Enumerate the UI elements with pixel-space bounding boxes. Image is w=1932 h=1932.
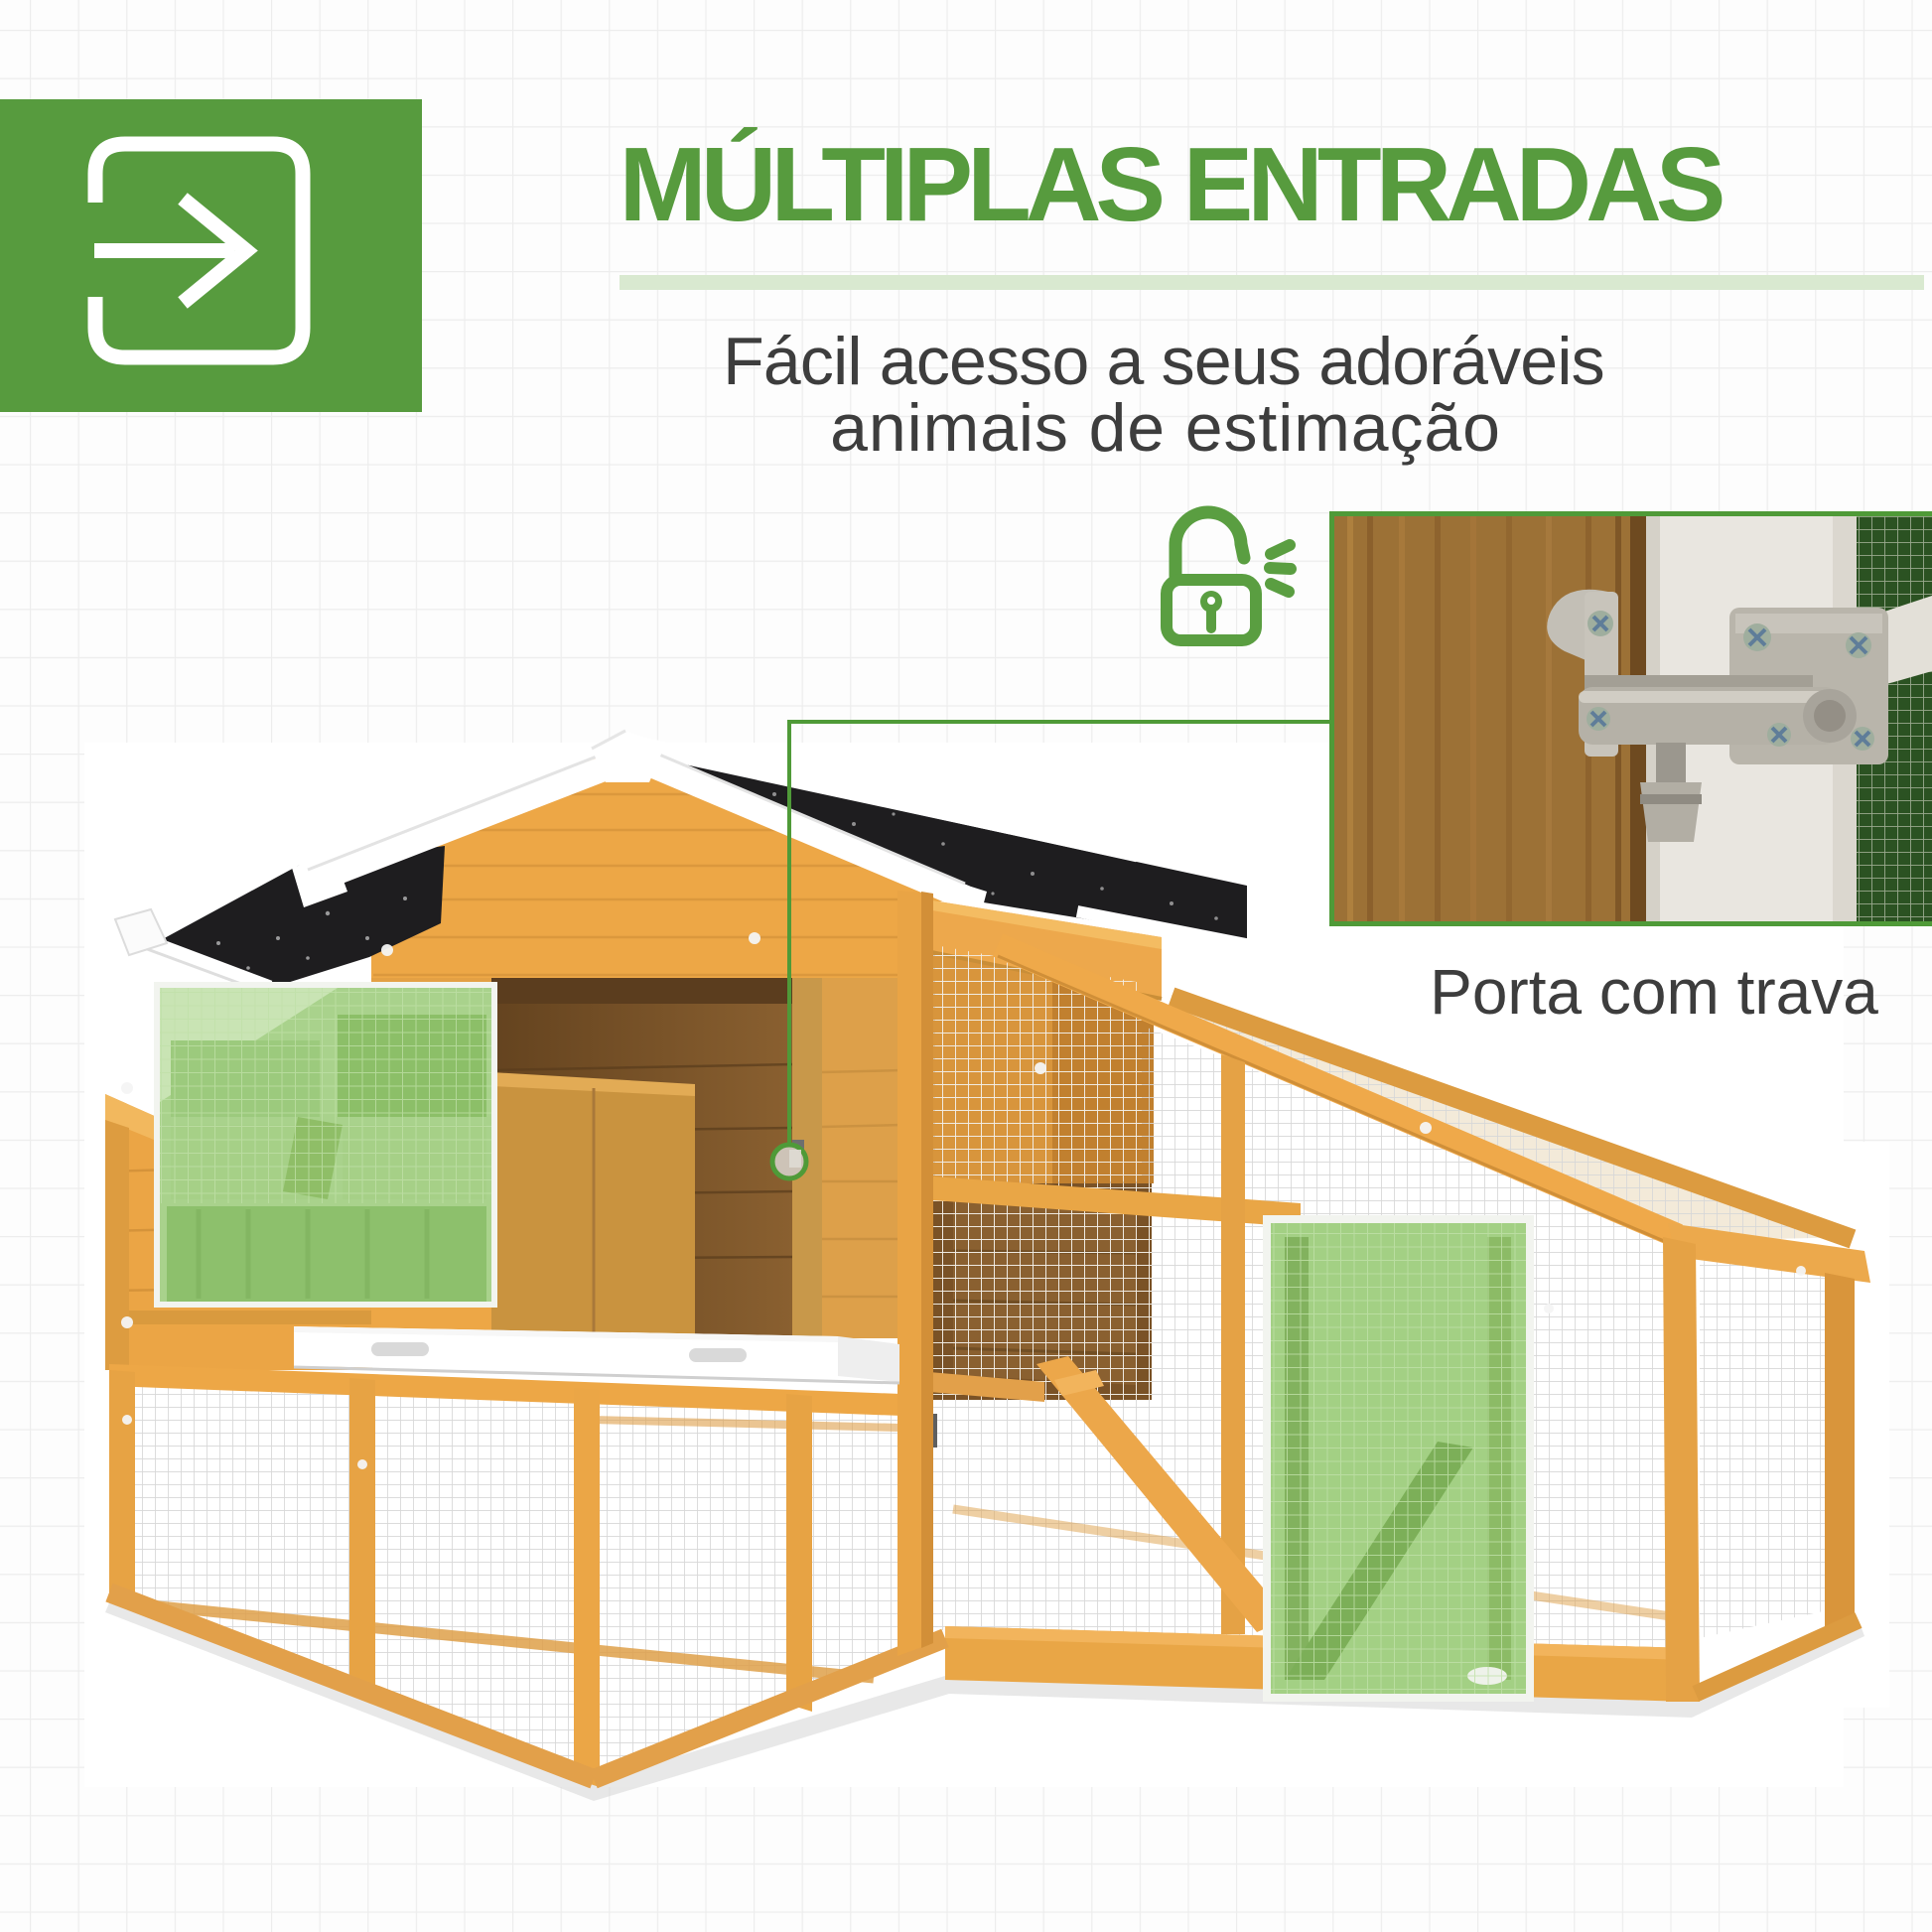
svg-text:animais de estimação: animais de estimação	[830, 390, 1501, 466]
svg-text:Fácil acesso a seus adoráveis: Fácil acesso a seus adoráveis	[723, 324, 1604, 399]
svg-text:Porta com trava: Porta com trava	[1430, 956, 1878, 1028]
svg-text:MÚLTIPLAS ENTRADAS: MÚLTIPLAS ENTRADAS	[620, 126, 1723, 243]
